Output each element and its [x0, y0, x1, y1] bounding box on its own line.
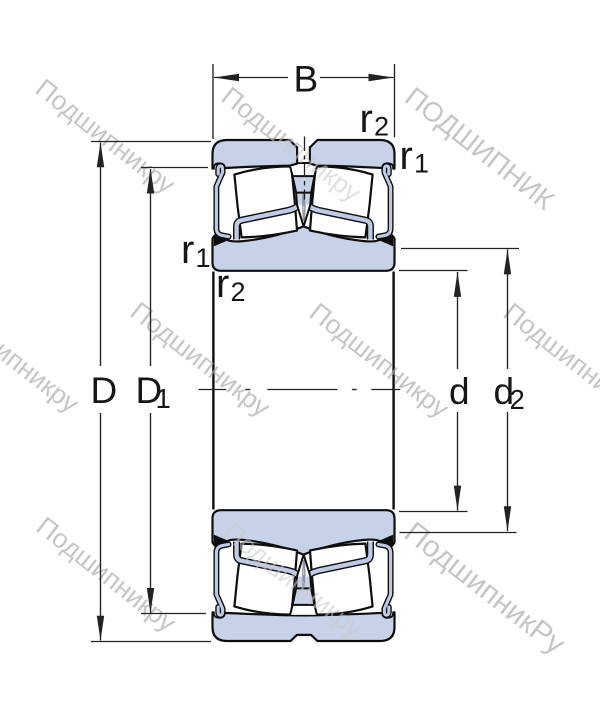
svg-text:1: 1 [414, 149, 429, 179]
svg-text:2: 2 [231, 277, 246, 307]
svg-text:B: B [294, 59, 319, 100]
svg-text:r: r [181, 228, 194, 272]
svg-text:r: r [400, 134, 413, 178]
svg-text:d: d [449, 371, 470, 412]
svg-text:D: D [91, 370, 118, 411]
svg-text:r: r [216, 262, 229, 306]
svg-text:2: 2 [510, 384, 525, 415]
svg-text:1: 1 [156, 383, 171, 414]
svg-text:1: 1 [196, 243, 211, 273]
svg-text:r: r [360, 97, 373, 141]
svg-text:2: 2 [374, 112, 389, 142]
